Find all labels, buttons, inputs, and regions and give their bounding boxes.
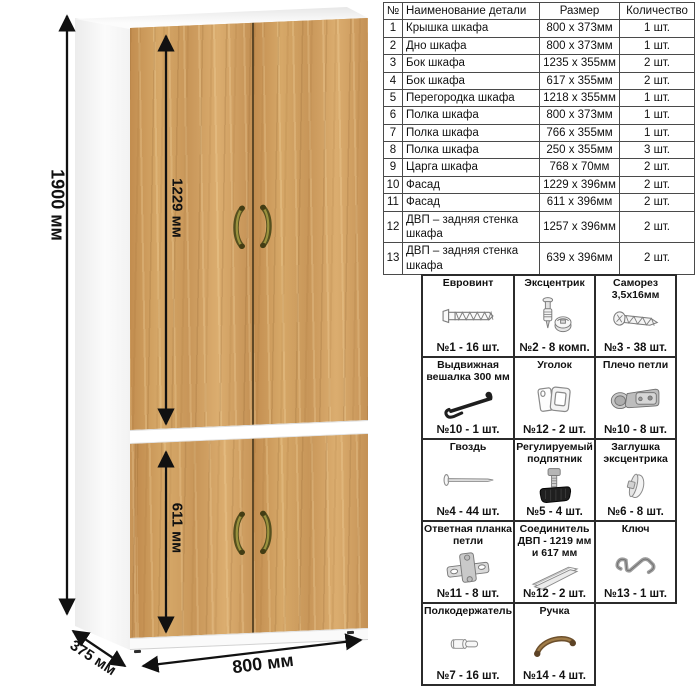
self-tapping-screw-icon [610, 302, 662, 343]
part-name-cell: Фасад [403, 176, 540, 193]
parts-table-body: 1Крышка шкафа800 х 373мм1 шт.2Дно шкафа8… [384, 20, 695, 275]
hardware-item-label: Уголок [536, 358, 573, 372]
hardware-item-qty: №7 - 16 шт. [437, 670, 500, 684]
part-name-cell: ДВП – задняя стенка шкафа [403, 211, 540, 243]
hardware-item-label: Евровинт [442, 276, 495, 290]
hardware-item-qty: №13 - 1 шт. [604, 588, 667, 602]
part-size-cell: 611 х 396мм [540, 194, 620, 211]
parts-table-row: 5Перегородка шкафа1218 х 355мм1 шт. [384, 89, 695, 106]
part-number-cell: 10 [384, 176, 403, 193]
part-qty-cell: 2 шт. [620, 176, 695, 193]
part-number-cell: 1 [384, 20, 403, 37]
part-name-cell: Перегородка шкафа [403, 89, 540, 106]
hardware-cell: Уголок№12 - 2 шт. [514, 357, 595, 439]
eccentric-cam-icon [534, 290, 576, 342]
hardware-cell: Ручка№14 - 4 шт. [514, 603, 595, 685]
part-size-cell: 768 х 70мм [540, 159, 620, 176]
part-size-cell: 250 х 355мм [540, 142, 620, 159]
part-size-cell: 1235 х 355мм [540, 55, 620, 72]
hardware-item-label: Заглушка эксцентрика [596, 440, 675, 466]
part-qty-cell: 1 шт. [620, 20, 695, 37]
part-name-cell: Дно шкафа [403, 37, 540, 54]
part-number-cell: 12 [384, 211, 403, 243]
part-size-cell: 1229 х 396мм [540, 176, 620, 193]
hardware-cell: Плечо петли№10 - 8 шт. [595, 357, 676, 439]
hardware-item-qty: №11 - 8 шт. [437, 588, 499, 602]
hardware-row: Евровинт№1 - 16 шт.Эксцентрик№2 - 8 комп… [422, 275, 676, 357]
hardware-table-body: Евровинт№1 - 16 шт.Эксцентрик№2 - 8 комп… [422, 275, 676, 685]
hardware-item-qty: №12 - 2 шт. [523, 588, 586, 602]
depth-dimension-label: 375 мм [67, 637, 119, 679]
parts-table-row: 8Полка шкафа250 х 355мм3 шт. [384, 142, 695, 159]
part-number-cell: 3 [384, 55, 403, 72]
upper-doors [130, 18, 368, 430]
hardware-item-qty: №4 - 44 шт. [437, 506, 500, 520]
part-number-cell: 4 [384, 72, 403, 89]
hardware-item-qty: №14 - 4 шт. [523, 670, 586, 684]
hardware-item-label: Ключ [621, 522, 651, 536]
hardware-item-qty: №6 - 8 шт. [607, 506, 663, 520]
hardware-item-label: Гвоздь [449, 440, 488, 454]
part-size-cell: 800 х 373мм [540, 107, 620, 124]
part-qty-cell: 2 шт. [620, 72, 695, 89]
parts-table-row: 6Полка шкафа800 х 373мм1 шт. [384, 107, 695, 124]
hinge-plate-icon [443, 548, 493, 589]
part-qty-cell: 2 шт. [620, 243, 695, 275]
part-name-cell: Царга шкафа [403, 159, 540, 176]
hardware-cell: Саморез 3,5х16мм№3 - 38 шт. [595, 275, 676, 357]
adjustable-foot-icon [535, 466, 575, 507]
part-number-cell: 13 [384, 243, 403, 275]
part-number-cell: 6 [384, 107, 403, 124]
nail-icon [440, 454, 496, 506]
lower-doors [130, 434, 368, 638]
parts-table-row: 3Бок шкафа1235 х 355мм2 шт. [384, 55, 695, 72]
hinge-arm-icon [608, 372, 664, 424]
hardware-item-label: Регулируемый подпятник [515, 440, 594, 466]
foot-mark [134, 650, 141, 653]
parts-table-row: 11Фасад611 х 396мм2 шт. [384, 194, 695, 211]
hardware-item-label: Полкодержатель [423, 604, 513, 618]
part-number-cell: 7 [384, 124, 403, 141]
hardware-cell: Ответная планка петли№11 - 8 шт. [422, 521, 514, 603]
hardware-cell: Регулируемый подпятник№5 - 4 шт. [514, 439, 595, 521]
part-size-cell: 766 х 355мм [540, 124, 620, 141]
lower-door-dimension-label: 611 мм [169, 503, 186, 554]
part-name-cell: Полка шкафа [403, 124, 540, 141]
hardware-row: Ответная планка петли№11 - 8 шт.Соединит… [422, 521, 676, 603]
part-number-cell: 11 [384, 194, 403, 211]
parts-table: № Наименование детали Размер Количество … [383, 2, 695, 275]
hardware-cell: Заглушка эксцентрика№6 - 8 шт. [595, 439, 676, 521]
part-number-cell: 5 [384, 89, 403, 106]
upper-door-dimension-label: 1229 мм [169, 178, 186, 238]
part-name-cell: Полка шкафа [403, 107, 540, 124]
hardware-cell: Евровинт№1 - 16 шт. [422, 275, 514, 357]
hardware-item-label: Ручка [539, 604, 571, 618]
door-handle-icon [529, 618, 581, 670]
parts-table-row: 7Полка шкафа766 х 355мм1 шт. [384, 124, 695, 141]
parts-table-row: 12ДВП – задняя стенка шкафа1257 х 396мм2… [384, 211, 695, 243]
part-qty-cell: 2 шт. [620, 55, 695, 72]
hardware-item-qty: №5 - 4 шт. [526, 506, 582, 520]
hardware-item-label: Эксцентрик [523, 276, 585, 290]
hardware-item-label: Выдвижная вешалка 300 мм [423, 358, 513, 384]
door-handle-icon [260, 203, 274, 250]
part-name-cell: Фасад [403, 194, 540, 211]
shelf-pin-icon [445, 618, 491, 670]
door-handle-icon [231, 204, 245, 251]
parts-table-header: № Наименование детали Размер Количество [384, 3, 695, 20]
header-name: Наименование детали [403, 3, 540, 20]
hardware-item-qty: №12 - 2 шт. [523, 424, 586, 438]
cam-cap-icon [622, 466, 650, 507]
header-size: Размер [540, 3, 620, 20]
part-qty-cell: 2 шт. [620, 211, 695, 243]
door-handle-icon [231, 510, 245, 557]
hardware-item-label: Плечо петли [602, 358, 669, 372]
hardware-item-label: Соединитель ДВП - 1219 мм и 617 мм [515, 522, 594, 559]
parts-table-row: 2Дно шкафа800 х 373мм1 шт. [384, 37, 695, 54]
hardware-item-qty: №10 - 1 шт. [437, 424, 500, 438]
hardware-cell: Полкодержатель№7 - 16 шт. [422, 603, 514, 685]
hardware-row: Гвоздь№4 - 44 шт.Регулируемый подпятник№… [422, 439, 676, 521]
part-number-cell: 9 [384, 159, 403, 176]
hardware-cell: Гвоздь№4 - 44 шт. [422, 439, 514, 521]
part-size-cell: 1257 х 396мм [540, 211, 620, 243]
wardrobe-front [130, 18, 368, 648]
hardware-row: Выдвижная вешалка 300 мм№10 - 1 шт.Уголо… [422, 357, 676, 439]
hdf-connector-icon [527, 559, 583, 588]
hardware-item-qty: №2 - 8 комп. [519, 342, 589, 356]
part-name-cell: Бок шкафа [403, 55, 540, 72]
parts-table-row: 10Фасад1229 х 396мм2 шт. [384, 176, 695, 193]
part-size-cell: 617 х 355мм [540, 72, 620, 89]
part-name-cell: Бок шкафа [403, 72, 540, 89]
foot-mark [347, 631, 354, 634]
parts-table-row: 4Бок шкафа617 х 355мм2 шт. [384, 72, 695, 89]
parts-table-row: 1Крышка шкафа800 х 373мм1 шт. [384, 20, 695, 37]
width-dimension-label: 800 мм [231, 650, 295, 678]
part-qty-cell: 2 шт. [620, 194, 695, 211]
corner-bracket-icon [532, 372, 578, 424]
parts-table-row: 9Царга шкафа768 х 70мм2 шт. [384, 159, 695, 176]
door-handle-icon [260, 509, 274, 556]
hardware-row: Полкодержатель№7 - 16 шт.Ручка№14 - 4 шт… [422, 603, 676, 685]
pullout-hanger-icon [440, 384, 496, 425]
hex-key-icon [611, 536, 661, 588]
part-qty-cell: 1 шт. [620, 89, 695, 106]
euro-screw-icon [440, 290, 496, 342]
hardware-item-qty: №3 - 38 шт. [604, 342, 667, 356]
part-name-cell: Крышка шкафа [403, 20, 540, 37]
part-size-cell: 800 х 373мм [540, 37, 620, 54]
part-qty-cell: 1 шт. [620, 37, 695, 54]
part-qty-cell: 3 шт. [620, 142, 695, 159]
part-name-cell: Полка шкафа [403, 142, 540, 159]
header-quantity: Количество [620, 3, 695, 20]
wardrobe-side-panel [75, 18, 130, 650]
part-size-cell: 639 х 396мм [540, 243, 620, 275]
hardware-item-label: Ответная планка петли [423, 522, 513, 548]
header-number: № [384, 3, 403, 20]
hardware-cell: Эксцентрик№2 - 8 комп. [514, 275, 595, 357]
assembly-instruction-page: 1900 мм 1229 мм 611 мм 800 мм 375 мм № Н… [0, 0, 700, 700]
part-qty-cell: 2 шт. [620, 159, 695, 176]
part-number-cell: 2 [384, 37, 403, 54]
part-qty-cell: 1 шт. [620, 107, 695, 124]
hardware-item-label: Саморез 3,5х16мм [596, 276, 675, 302]
part-size-cell: 1218 х 355мм [540, 89, 620, 106]
part-name-cell: ДВП – задняя стенка шкафа [403, 243, 540, 275]
part-number-cell: 8 [384, 142, 403, 159]
hardware-item-qty: №10 - 8 шт. [604, 424, 667, 438]
part-qty-cell: 1 шт. [620, 124, 695, 141]
hardware-cell: Ключ№13 - 1 шт. [595, 521, 676, 603]
part-size-cell: 800 х 373мм [540, 20, 620, 37]
hardware-cell: Соединитель ДВП - 1219 мм и 617 мм№12 - … [514, 521, 595, 603]
hardware-cell: Выдвижная вешалка 300 мм№10 - 1 шт. [422, 357, 514, 439]
parts-table-row: 13ДВП – задняя стенка шкафа639 х 396мм2 … [384, 243, 695, 275]
height-dimension-label: 1900 мм [47, 169, 68, 241]
hardware-table: Евровинт№1 - 16 шт.Эксцентрик№2 - 8 комп… [421, 274, 677, 686]
hardware-item-qty: №1 - 16 шт. [437, 342, 500, 356]
